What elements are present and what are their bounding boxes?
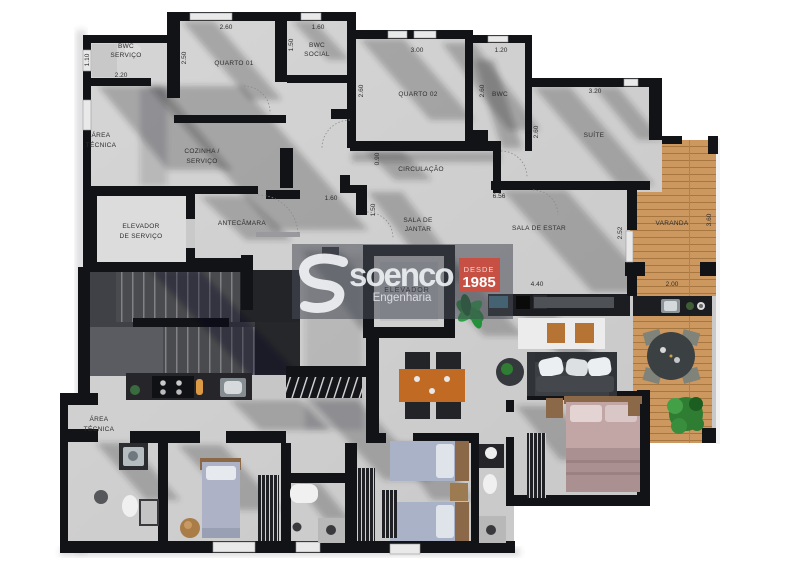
svg-text:BWC: BWC <box>309 42 325 49</box>
svg-text:SOCIAL: SOCIAL <box>304 51 330 58</box>
svg-text:1.10: 1.10 <box>84 53 91 66</box>
svg-text:SALA DE ESTAR: SALA DE ESTAR <box>512 225 566 232</box>
svg-text:4.40: 4.40 <box>531 281 544 288</box>
svg-text:VARANDA: VARANDA <box>655 220 688 227</box>
svg-text:Engenharia: Engenharia <box>373 292 432 304</box>
svg-text:1.60: 1.60 <box>312 24 325 31</box>
svg-text:QUARTO 02: QUARTO 02 <box>398 91 437 98</box>
svg-text:TÉCNICA: TÉCNICA <box>86 140 117 149</box>
svg-text:JANTAR: JANTAR <box>405 226 432 233</box>
svg-text:ELEVADOR: ELEVADOR <box>122 223 159 230</box>
svg-text:3.60: 3.60 <box>706 213 713 226</box>
svg-text:SERVIÇO: SERVIÇO <box>186 158 217 165</box>
svg-text:3.20: 3.20 <box>589 88 602 95</box>
svg-text:2.60: 2.60 <box>220 24 233 31</box>
svg-text:0.90: 0.90 <box>374 152 381 165</box>
svg-text:DESDE: DESDE <box>464 265 495 274</box>
svg-text:SUÍTE: SUÍTE <box>584 130 605 139</box>
svg-text:CIRCULAÇÃO: CIRCULAÇÃO <box>398 164 444 173</box>
svg-text:ÁREA: ÁREA <box>92 130 111 139</box>
svg-text:BWC: BWC <box>492 91 508 98</box>
svg-text:QUARTO 01: QUARTO 01 <box>214 60 253 67</box>
svg-text:COZINHA /: COZINHA / <box>184 148 219 155</box>
svg-text:3.00: 3.00 <box>411 47 424 54</box>
svg-text:soenco: soenco <box>349 256 453 293</box>
svg-text:TÉCNICA: TÉCNICA <box>84 424 115 433</box>
svg-text:BWC: BWC <box>118 43 134 50</box>
svg-text:2.00: 2.00 <box>666 281 679 288</box>
svg-text:ÁREA: ÁREA <box>90 414 109 423</box>
svg-text:SALA DE: SALA DE <box>403 217 433 224</box>
svg-text:1.50: 1.50 <box>288 38 295 51</box>
svg-text:2.20: 2.20 <box>115 72 128 79</box>
svg-text:2.60: 2.60 <box>533 125 540 138</box>
svg-text:1.60: 1.60 <box>325 195 338 202</box>
svg-text:DE SERVIÇO: DE SERVIÇO <box>120 233 163 240</box>
svg-text:1.20: 1.20 <box>495 47 508 54</box>
svg-text:1985: 1985 <box>462 274 495 291</box>
svg-text:6.56: 6.56 <box>493 193 506 200</box>
svg-text:SERVIÇO: SERVIÇO <box>110 52 141 59</box>
svg-text:1.50: 1.50 <box>370 203 377 216</box>
svg-text:2.52: 2.52 <box>617 226 624 239</box>
svg-text:2.60: 2.60 <box>358 84 365 97</box>
svg-text:2.50: 2.50 <box>181 51 188 64</box>
svg-text:ANTECÂMARA: ANTECÂMARA <box>218 218 267 227</box>
svg-text:2.60: 2.60 <box>479 84 486 97</box>
